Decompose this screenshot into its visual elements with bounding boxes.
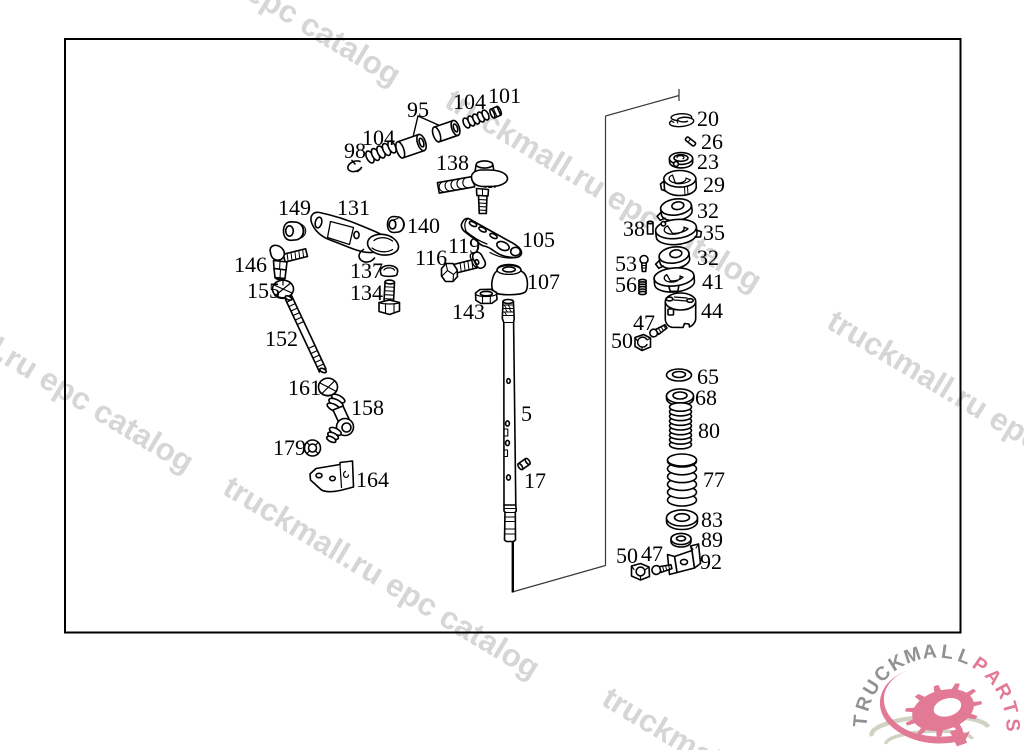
svg-text:5: 5 (521, 401, 532, 426)
svg-text:77: 77 (703, 467, 725, 492)
svg-text:107: 107 (527, 269, 560, 294)
svg-text:17: 17 (524, 468, 546, 493)
svg-text:134: 134 (350, 280, 383, 305)
svg-text:80: 80 (698, 418, 720, 443)
svg-text:47: 47 (641, 541, 663, 566)
svg-text:152: 152 (265, 326, 298, 351)
svg-text:56: 56 (615, 272, 637, 297)
svg-text:47: 47 (633, 310, 655, 335)
svg-text:161: 161 (288, 375, 321, 400)
svg-text:35: 35 (703, 220, 725, 245)
svg-text:32: 32 (697, 245, 719, 270)
svg-text:164: 164 (356, 467, 389, 492)
svg-text:143: 143 (452, 299, 485, 324)
svg-text:68: 68 (695, 385, 717, 410)
svg-text:179: 179 (273, 435, 306, 460)
svg-text:140: 140 (407, 213, 440, 238)
svg-text:149: 149 (278, 195, 311, 220)
svg-text:29: 29 (703, 172, 725, 197)
svg-text:98: 98 (344, 138, 366, 163)
svg-text:131: 131 (337, 195, 370, 220)
svg-text:44: 44 (701, 298, 723, 323)
svg-text:20: 20 (697, 106, 719, 131)
svg-text:146: 146 (234, 252, 267, 277)
svg-text:155: 155 (247, 278, 280, 303)
svg-text:50: 50 (616, 543, 638, 568)
svg-text:T: T (849, 714, 872, 728)
svg-text:104: 104 (453, 89, 486, 114)
svg-text:95: 95 (407, 97, 429, 122)
svg-text:105: 105 (522, 227, 555, 252)
svg-text:23: 23 (697, 149, 719, 174)
svg-text:101: 101 (488, 83, 521, 108)
svg-text:138: 138 (436, 150, 469, 175)
svg-text:119: 119 (448, 233, 480, 258)
svg-text:S: S (1001, 718, 1023, 732)
svg-text:92: 92 (700, 549, 722, 574)
svg-text:38: 38 (623, 216, 645, 241)
svg-text:158: 158 (351, 395, 384, 420)
svg-text:50: 50 (611, 328, 633, 353)
svg-text:A: A (922, 640, 938, 663)
svg-text:116: 116 (415, 245, 447, 270)
svg-text:41: 41 (702, 269, 724, 294)
svg-text:104: 104 (362, 125, 395, 150)
